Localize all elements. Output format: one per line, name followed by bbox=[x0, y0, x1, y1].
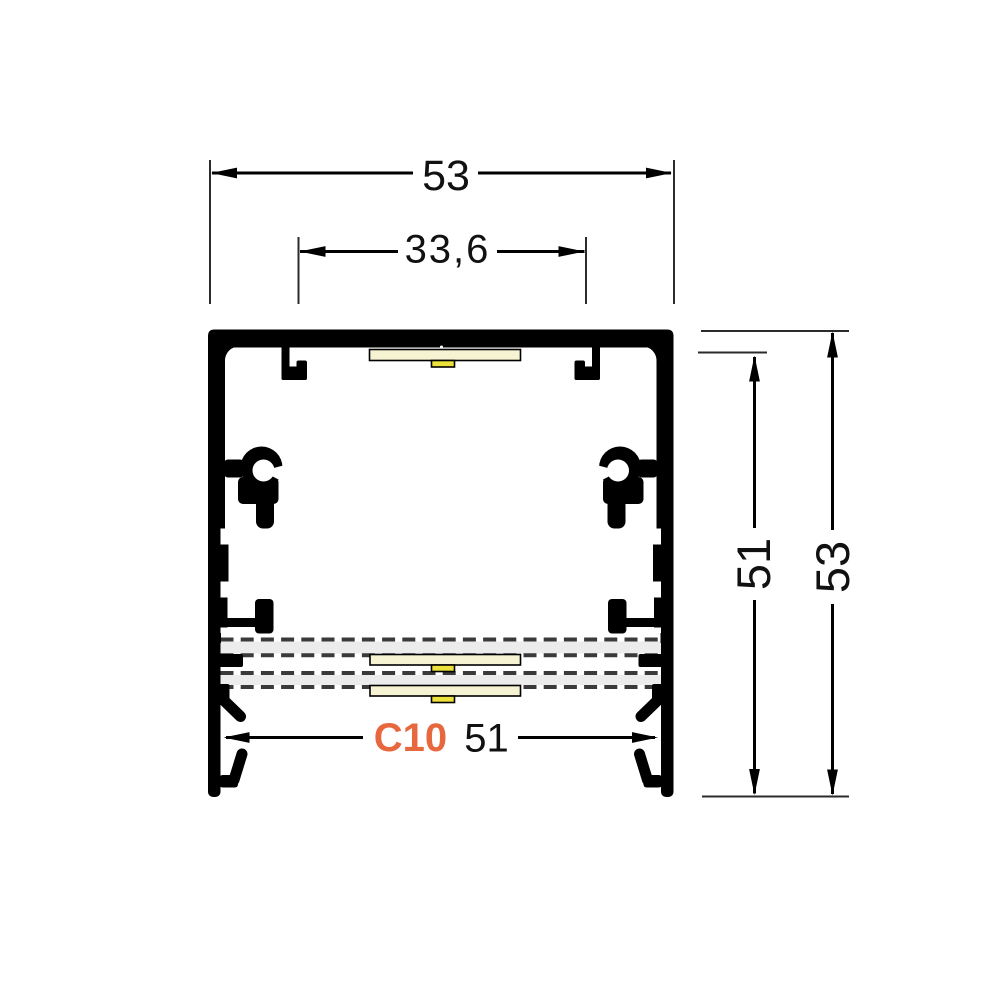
svg-text:53: 53 bbox=[806, 541, 859, 593]
svg-text:33,6: 33,6 bbox=[405, 228, 491, 272]
svg-text:53: 53 bbox=[422, 152, 470, 200]
svg-text:C10: C10 bbox=[374, 716, 447, 760]
svg-text:51: 51 bbox=[727, 538, 780, 590]
svg-text:51: 51 bbox=[464, 717, 509, 761]
